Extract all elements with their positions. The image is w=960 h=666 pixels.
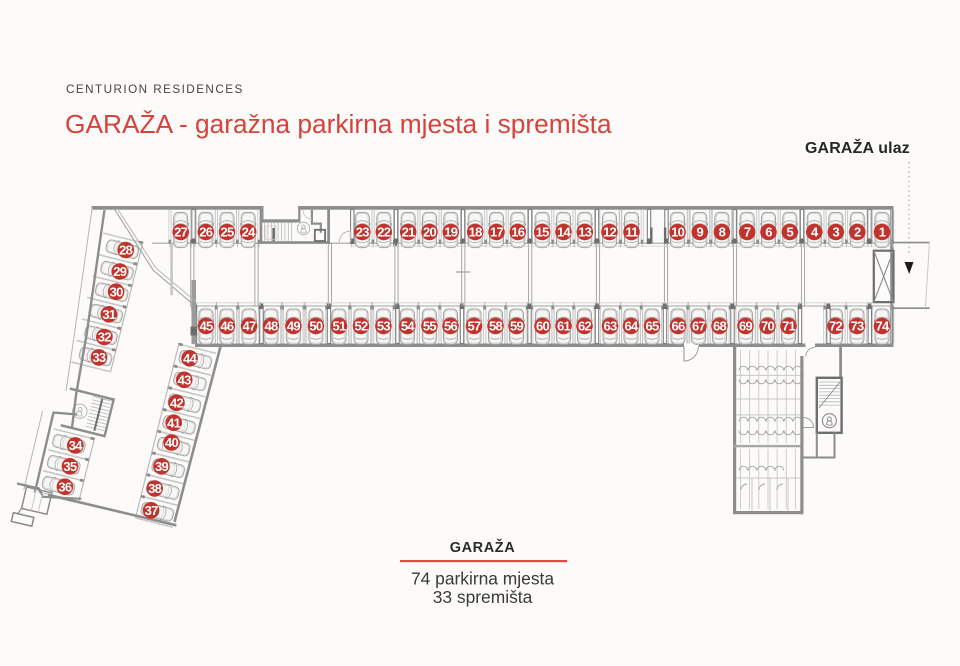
svg-text:45: 45 (199, 319, 213, 334)
svg-text:47: 47 (242, 319, 256, 334)
svg-text:34: 34 (69, 438, 84, 453)
svg-text:42: 42 (170, 396, 184, 411)
svg-text:GARAŽA - garažna parkirna mjes: GARAŽA - garažna parkirna mjesta i sprem… (65, 109, 612, 139)
svg-text:52: 52 (354, 319, 368, 334)
svg-text:74 parkirna mjesta: 74 parkirna mjesta (411, 569, 554, 589)
svg-text:50: 50 (309, 319, 323, 334)
svg-text:9: 9 (697, 225, 704, 240)
svg-text:22: 22 (377, 225, 391, 240)
svg-text:15: 15 (536, 225, 550, 240)
svg-text:13: 13 (578, 225, 592, 240)
svg-text:GARAŽA: GARAŽA (450, 538, 516, 556)
svg-text:71: 71 (782, 319, 796, 334)
svg-text:24: 24 (242, 225, 257, 240)
svg-text:23: 23 (356, 225, 370, 240)
svg-text:11: 11 (625, 225, 638, 240)
svg-text:62: 62 (578, 319, 592, 334)
svg-text:65: 65 (645, 319, 659, 334)
svg-text:GARAŽA ulaz: GARAŽA ulaz (805, 138, 910, 157)
svg-text:6: 6 (765, 225, 772, 240)
svg-text:48: 48 (264, 319, 278, 334)
svg-text:72: 72 (829, 319, 843, 334)
svg-text:58: 58 (489, 319, 503, 334)
svg-text:20: 20 (423, 225, 437, 240)
svg-text:64: 64 (624, 319, 639, 334)
svg-text:31: 31 (102, 307, 116, 322)
svg-text:CENTURION RESIDENCES: CENTURION RESIDENCES (66, 83, 244, 96)
svg-text:2: 2 (854, 225, 861, 240)
svg-text:73: 73 (850, 319, 864, 334)
svg-text:27: 27 (174, 225, 188, 240)
svg-text:17: 17 (490, 225, 504, 240)
svg-text:49: 49 (287, 319, 301, 334)
svg-text:30: 30 (110, 284, 124, 299)
svg-text:61: 61 (557, 319, 571, 334)
svg-text:44: 44 (183, 351, 198, 366)
svg-text:63: 63 (603, 319, 617, 334)
svg-text:51: 51 (332, 319, 346, 334)
svg-text:66: 66 (671, 319, 685, 334)
svg-text:56: 56 (444, 319, 458, 334)
svg-text:3: 3 (833, 225, 840, 240)
svg-text:60: 60 (536, 319, 550, 334)
svg-text:40: 40 (165, 435, 179, 450)
svg-text:18: 18 (469, 225, 483, 240)
svg-text:25: 25 (220, 225, 234, 240)
svg-text:14: 14 (557, 225, 572, 240)
svg-text:12: 12 (603, 225, 617, 240)
svg-text:55: 55 (423, 319, 437, 334)
svg-text:21: 21 (402, 225, 416, 240)
svg-text:70: 70 (761, 319, 775, 334)
svg-text:41: 41 (167, 415, 181, 430)
svg-text:5: 5 (787, 225, 794, 240)
svg-text:33: 33 (92, 350, 106, 365)
svg-text:28: 28 (119, 243, 133, 258)
svg-text:19: 19 (444, 225, 458, 240)
svg-text:7: 7 (744, 225, 751, 240)
svg-text:32: 32 (98, 330, 112, 345)
svg-text:57: 57 (467, 319, 481, 334)
svg-text:16: 16 (511, 225, 525, 240)
svg-text:43: 43 (178, 373, 192, 388)
svg-text:10: 10 (671, 225, 685, 240)
svg-text:33 spremišta: 33 spremišta (433, 587, 533, 607)
svg-text:38: 38 (148, 481, 162, 496)
svg-text:54: 54 (401, 319, 416, 334)
svg-text:1: 1 (879, 225, 886, 240)
svg-text:59: 59 (510, 319, 524, 334)
svg-text:74: 74 (875, 319, 890, 334)
svg-text:68: 68 (713, 319, 727, 334)
svg-text:37: 37 (145, 503, 159, 518)
svg-text:8: 8 (719, 225, 726, 240)
svg-text:67: 67 (692, 319, 706, 334)
svg-text:69: 69 (739, 319, 753, 334)
svg-text:53: 53 (377, 319, 391, 334)
svg-text:29: 29 (113, 264, 127, 279)
svg-text:46: 46 (220, 319, 234, 334)
svg-text:39: 39 (155, 459, 169, 474)
svg-text:35: 35 (63, 459, 77, 474)
svg-text:26: 26 (199, 225, 213, 240)
svg-text:36: 36 (58, 479, 72, 494)
